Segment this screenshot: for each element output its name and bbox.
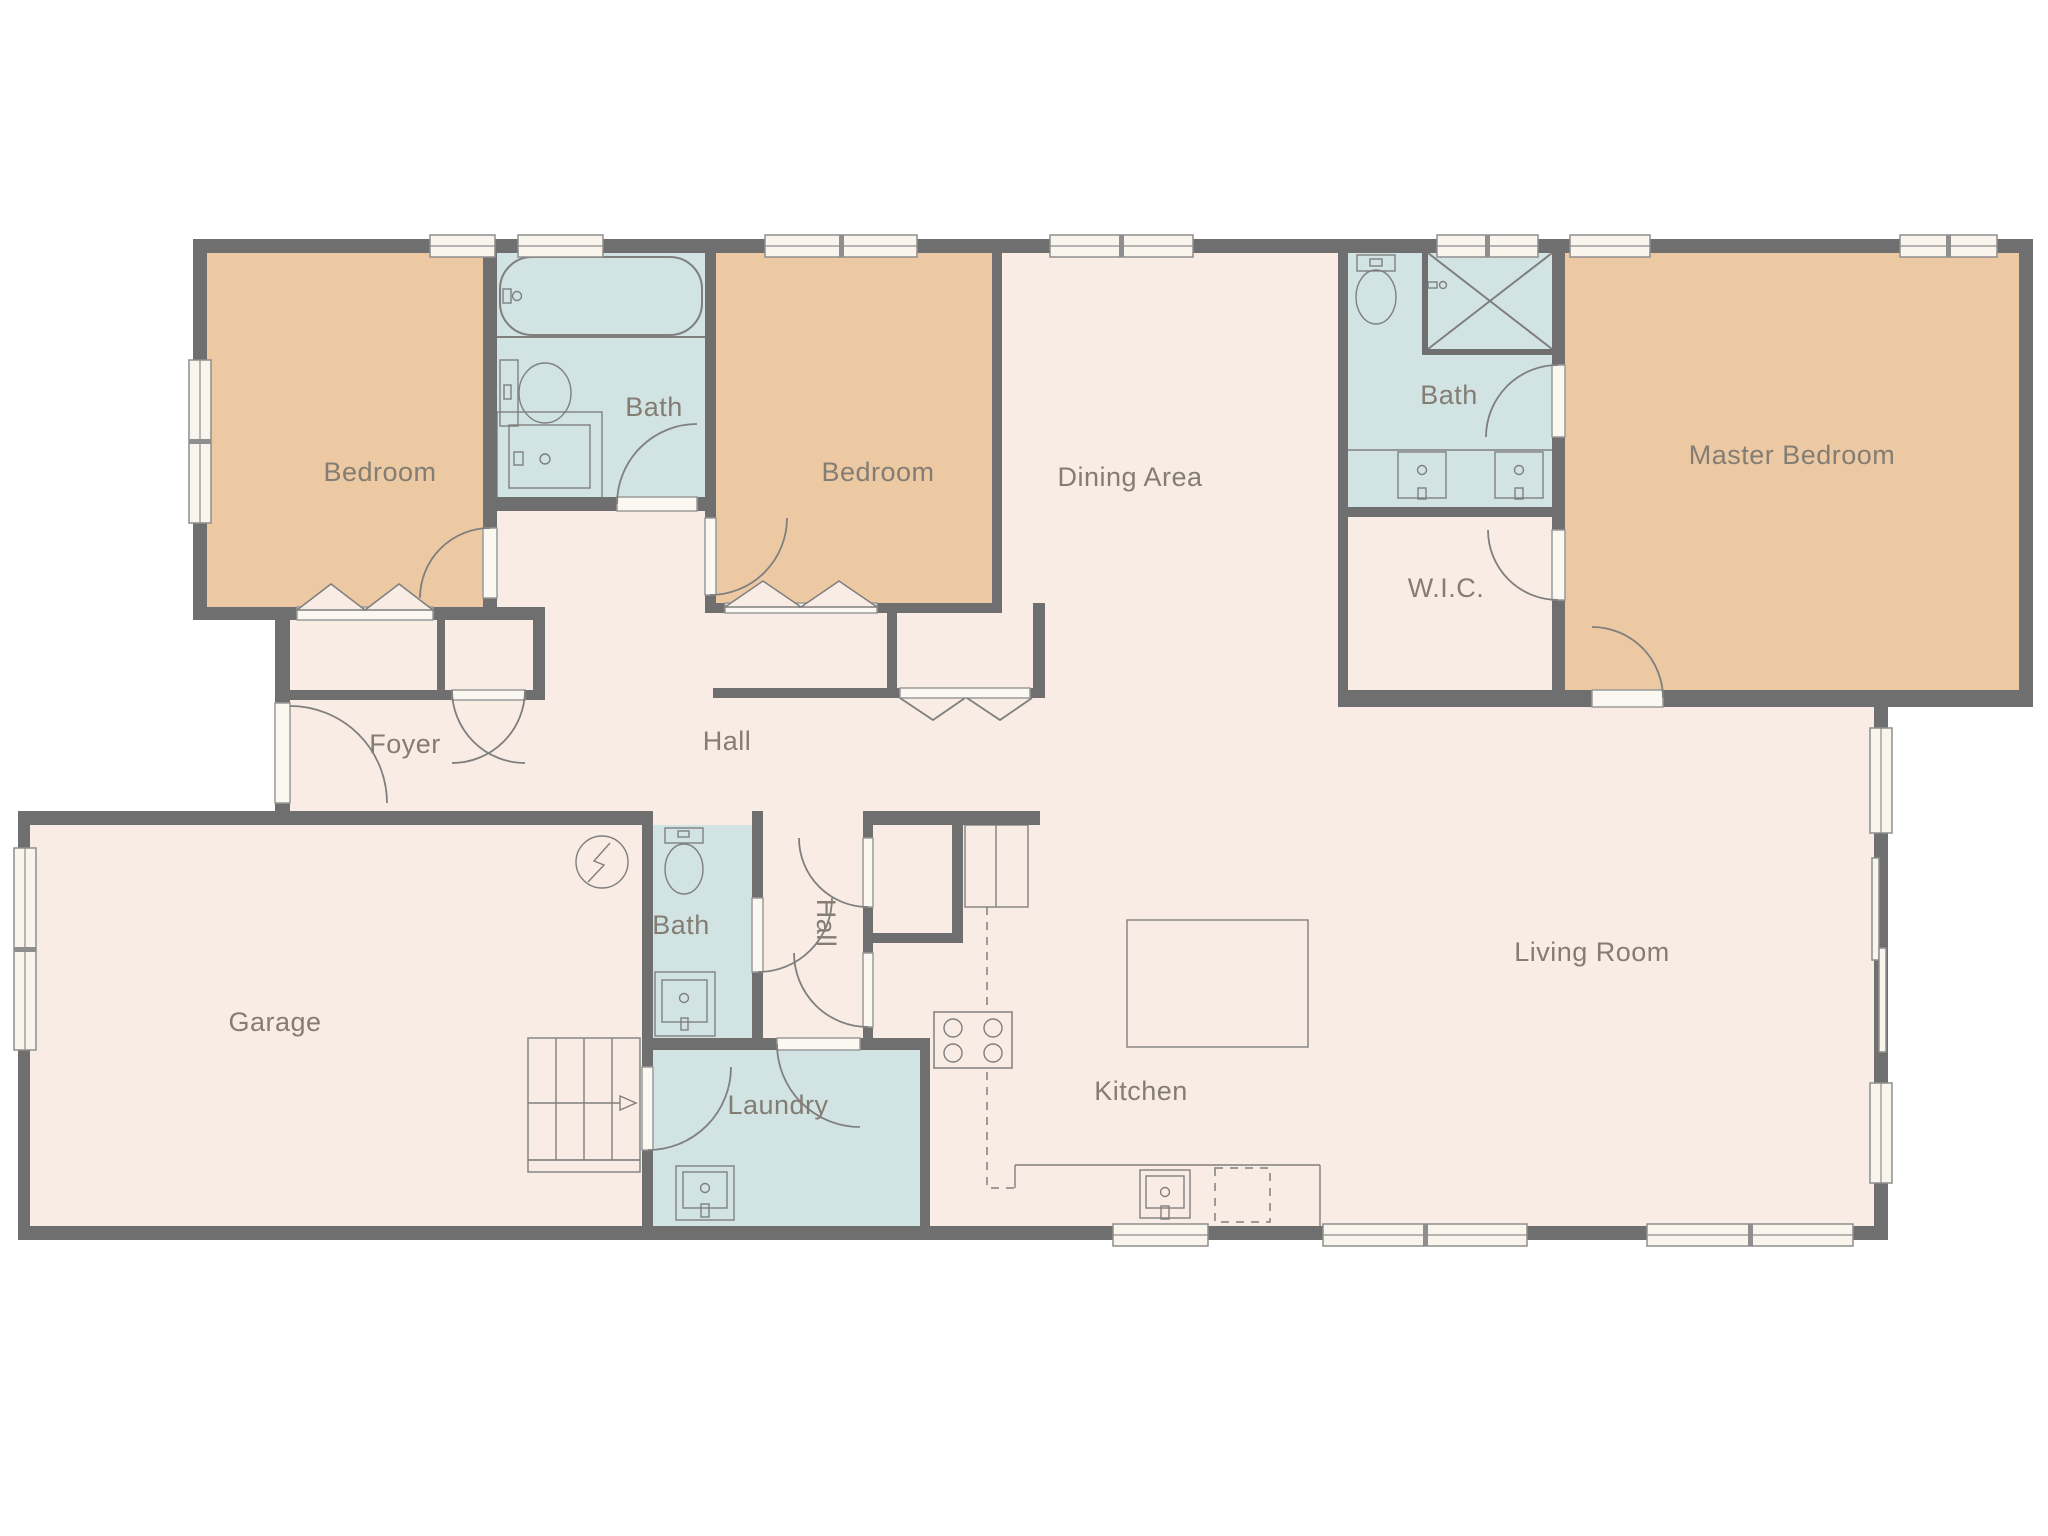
room-label-bath-2: Bath: [1420, 380, 1478, 410]
window: [1113, 1224, 1208, 1246]
room-label-living-room: Living Room: [1514, 937, 1670, 967]
window: [1323, 1224, 1527, 1246]
floor-plan-page: Bedroom Bath Bedroom Dining Area Bath W.…: [0, 0, 2048, 1536]
room-label-foyer: Foyer: [369, 729, 441, 759]
room-label-bedroom-1: Bedroom: [323, 457, 436, 487]
room-label-kitchen: Kitchen: [1094, 1076, 1188, 1106]
room-label-hall-2: Hall: [811, 899, 841, 948]
room-label-laundry: Laundry: [727, 1090, 828, 1120]
window: [1870, 1083, 1892, 1183]
window: [1437, 235, 1538, 257]
window: [1870, 728, 1892, 833]
window: [765, 235, 917, 257]
room-bedroom-1: [207, 253, 483, 607]
room-label-bath-3: Bath: [652, 910, 710, 940]
window: [14, 848, 36, 1050]
window: [1647, 1224, 1853, 1246]
room-wic-floor: [1348, 517, 1552, 690]
room-label-bath-1: Bath: [625, 392, 683, 422]
window: [430, 235, 495, 257]
window: [1570, 235, 1650, 257]
floor-plan-canvas: Bedroom Bath Bedroom Dining Area Bath W.…: [0, 0, 2048, 1536]
stove-icon: [934, 1012, 1012, 1068]
room-master-bedroom: [1565, 253, 2019, 690]
room-label-garage: Garage: [228, 1007, 321, 1037]
window: [1900, 235, 1997, 257]
window: [518, 235, 603, 257]
room-bedroom-2: [716, 253, 992, 603]
room-label-wic: W.I.C.: [1408, 573, 1485, 603]
room-label-hall: Hall: [703, 726, 752, 756]
room-label-master-bedroom: Master Bedroom: [1689, 440, 1896, 470]
room-label-bedroom-2: Bedroom: [821, 457, 934, 487]
room-laundry: [653, 1050, 920, 1226]
window: [1050, 235, 1193, 257]
room-bath-1: [497, 253, 705, 497]
room-label-dining-area: Dining Area: [1057, 462, 1203, 492]
window: [189, 360, 211, 523]
